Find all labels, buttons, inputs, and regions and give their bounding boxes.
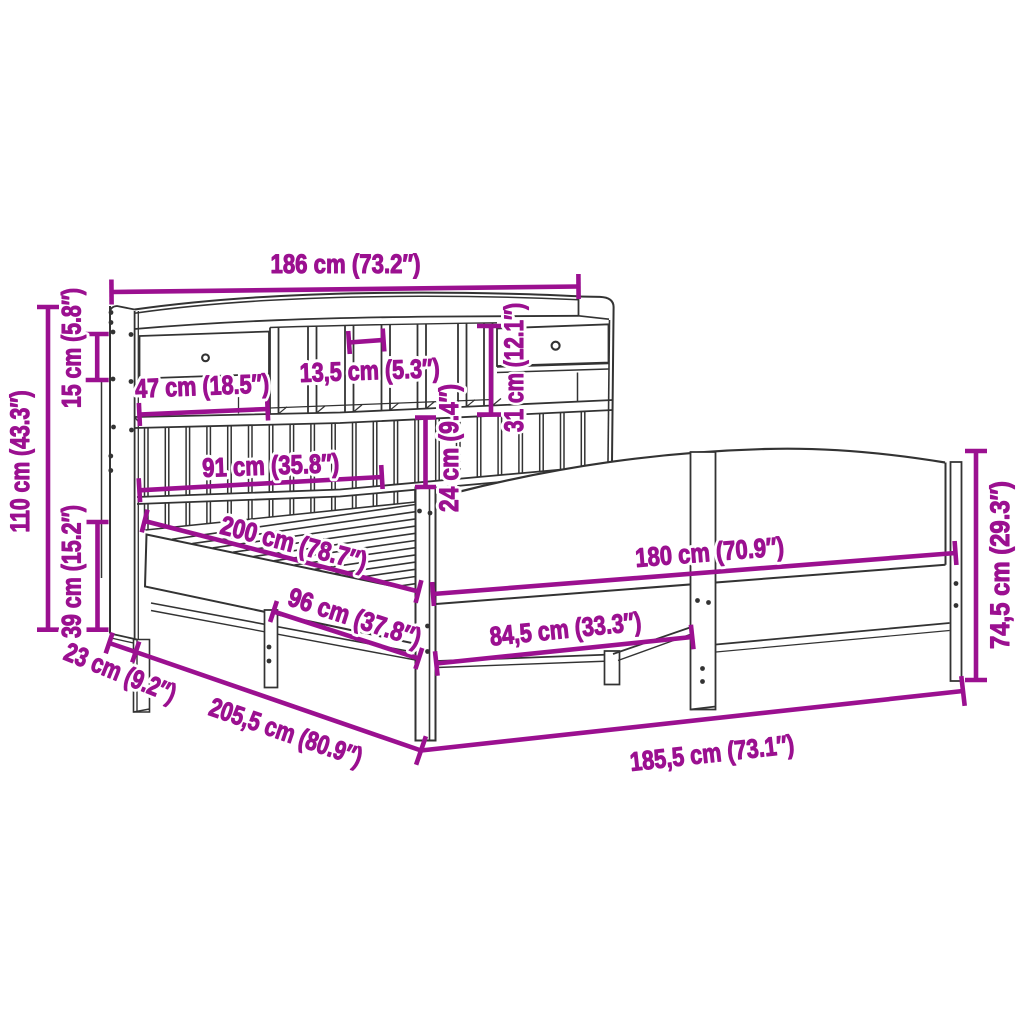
svg-text:186 cm (73.2″): 186 cm (73.2″) xyxy=(271,249,421,279)
svg-text:74,5 cm (29.3″): 74,5 cm (29.3″) xyxy=(985,481,1015,649)
svg-text:31 cm (12.1″): 31 cm (12.1″) xyxy=(499,303,529,432)
svg-text:110 cm (43.3″): 110 cm (43.3″) xyxy=(5,391,35,533)
svg-text:47 cm (18.5″): 47 cm (18.5″) xyxy=(135,368,270,403)
svg-text:24 cm (9.4″): 24 cm (9.4″) xyxy=(434,384,464,512)
svg-text:39 cm (15.2″): 39 cm (15.2″) xyxy=(57,505,87,638)
svg-text:13,5 cm (5.3″): 13,5 cm (5.3″) xyxy=(299,353,440,388)
svg-text:15 cm (5.8″): 15 cm (5.8″) xyxy=(57,288,87,408)
svg-text:91 cm (35.8″): 91 cm (35.8″) xyxy=(202,448,340,483)
